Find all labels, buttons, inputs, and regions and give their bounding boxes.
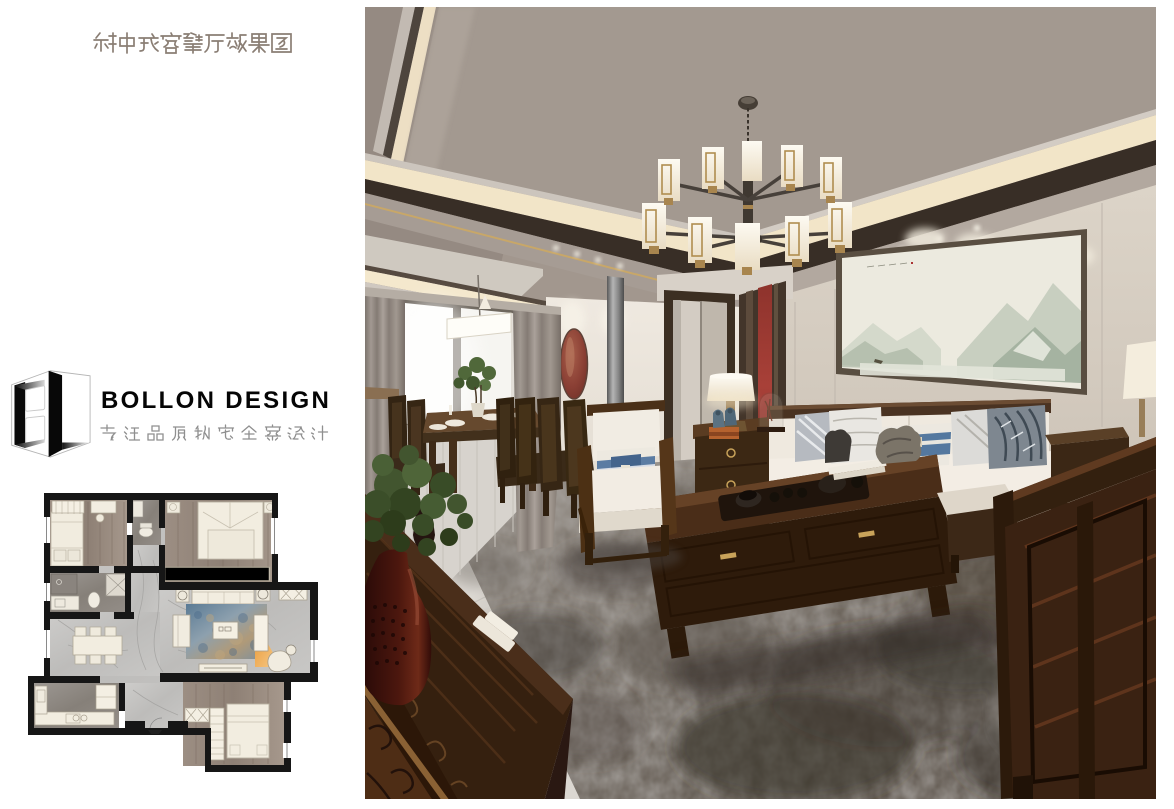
svg-text:BOLLON DESIGN: BOLLON DESIGN — [101, 387, 333, 414]
